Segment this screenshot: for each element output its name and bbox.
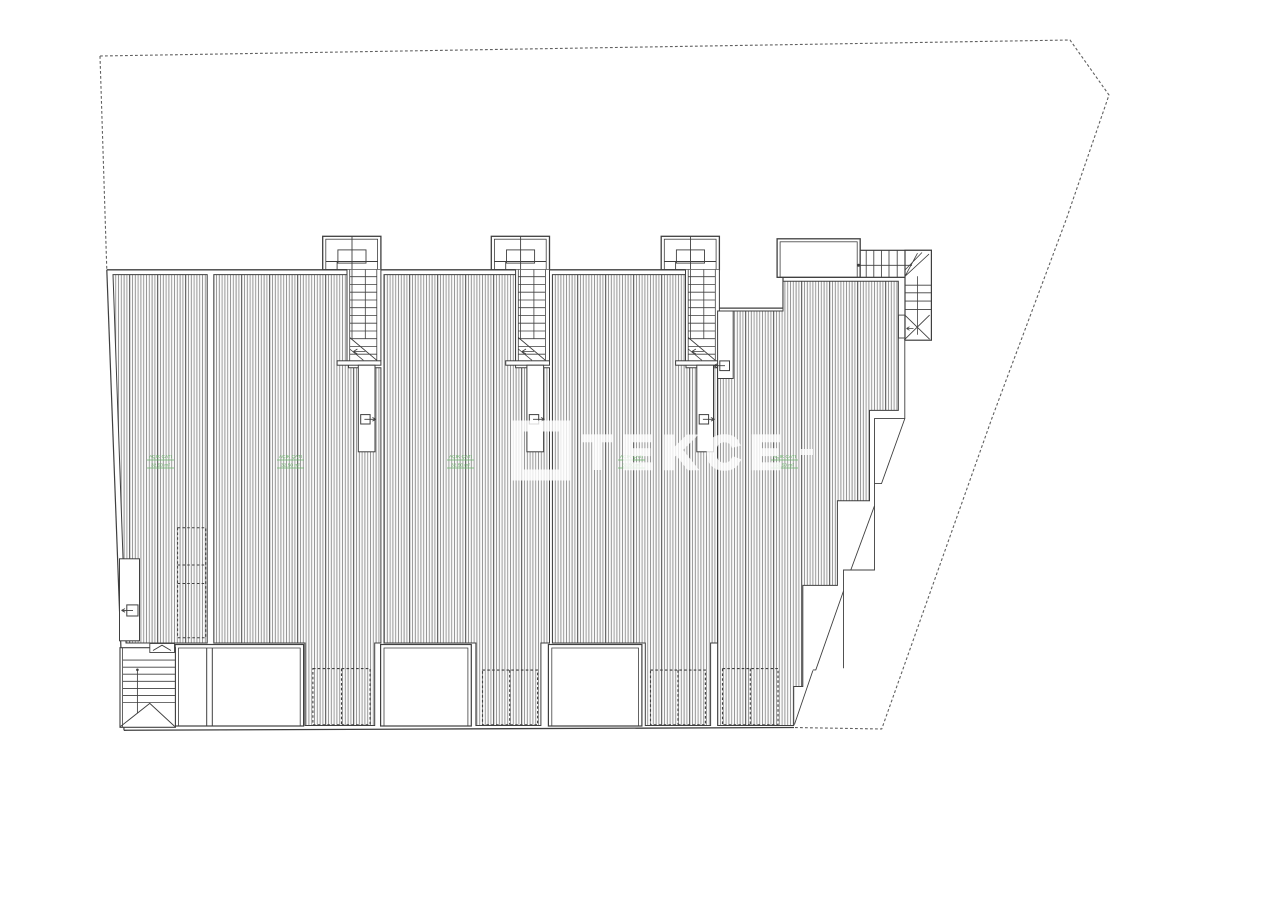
svg-text:AÇIK ÇATI: AÇIK ÇATI bbox=[149, 454, 172, 460]
svg-text:TEKCE: TEKCE bbox=[583, 427, 791, 480]
svg-text:AÇIK ÇATI: AÇIK ÇATI bbox=[449, 454, 472, 460]
svg-text:AÇIK ÇATI: AÇIK ÇATI bbox=[279, 454, 302, 460]
